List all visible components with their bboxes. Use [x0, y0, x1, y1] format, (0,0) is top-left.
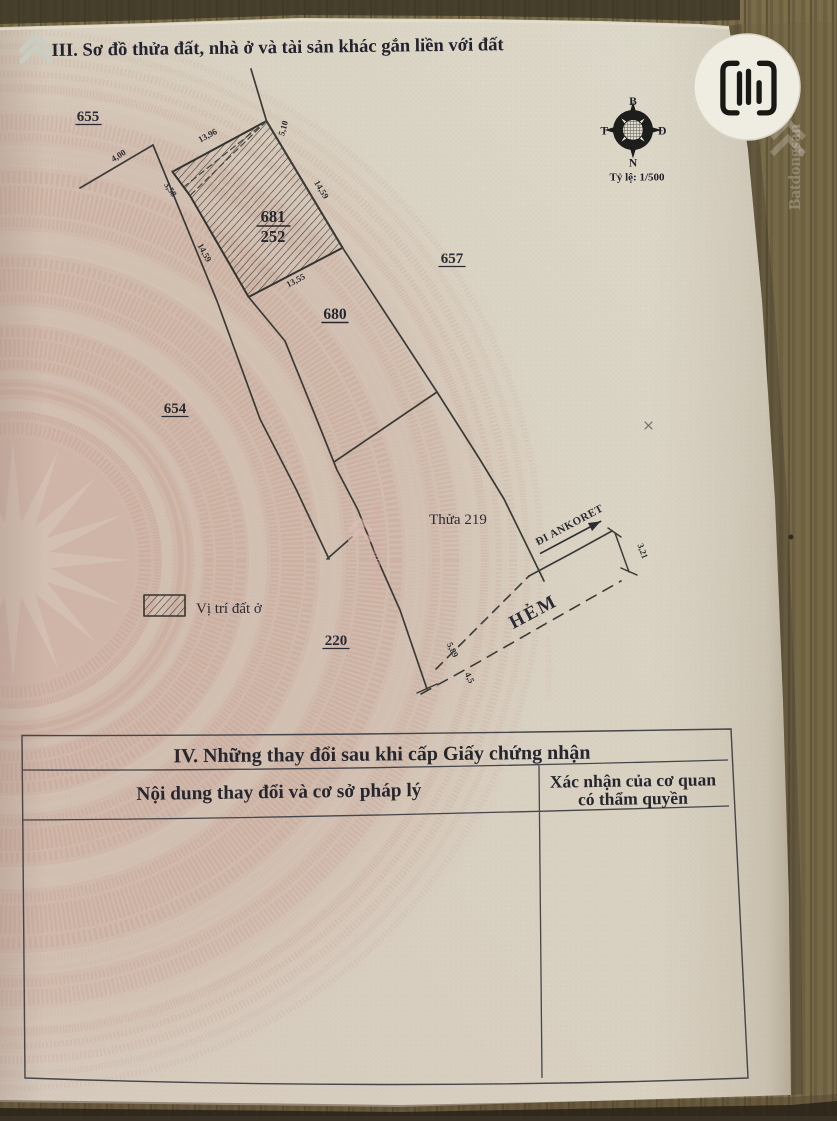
svg-text:252: 252	[261, 227, 286, 246]
svg-text:654: 654	[164, 401, 187, 417]
svg-text:batdongsan.com.vn: batdongsan.com.vn	[543, 622, 554, 700]
svg-text:220: 220	[325, 633, 348, 649]
svg-text:N: N	[629, 158, 638, 170]
svg-text:Đ: Đ	[658, 126, 666, 138]
svg-text:680: 680	[323, 306, 347, 323]
svg-text:Vị trí đất ở: Vị trí đất ở	[196, 601, 263, 617]
svg-text:T: T	[600, 126, 608, 138]
svg-text:có thẩm quyền: có thẩm quyền	[578, 788, 688, 810]
svg-text:IV. Những thay đổi sau khi cấp: IV. Những thay đổi sau khi cấp Giấy chứn…	[173, 742, 590, 768]
svg-text:Thửa 219: Thửa 219	[429, 512, 487, 528]
svg-text:655: 655	[77, 109, 100, 125]
svg-text:Tỷ lệ: 1/500: Tỷ lệ: 1/500	[610, 172, 665, 184]
svg-text:657: 657	[441, 251, 464, 267]
svg-text:B: B	[629, 96, 637, 108]
svg-text:Nội dung thay đổi và cơ sở phá: Nội dung thay đổi và cơ sở pháp lý	[136, 780, 422, 805]
svg-text:681: 681	[261, 207, 286, 226]
